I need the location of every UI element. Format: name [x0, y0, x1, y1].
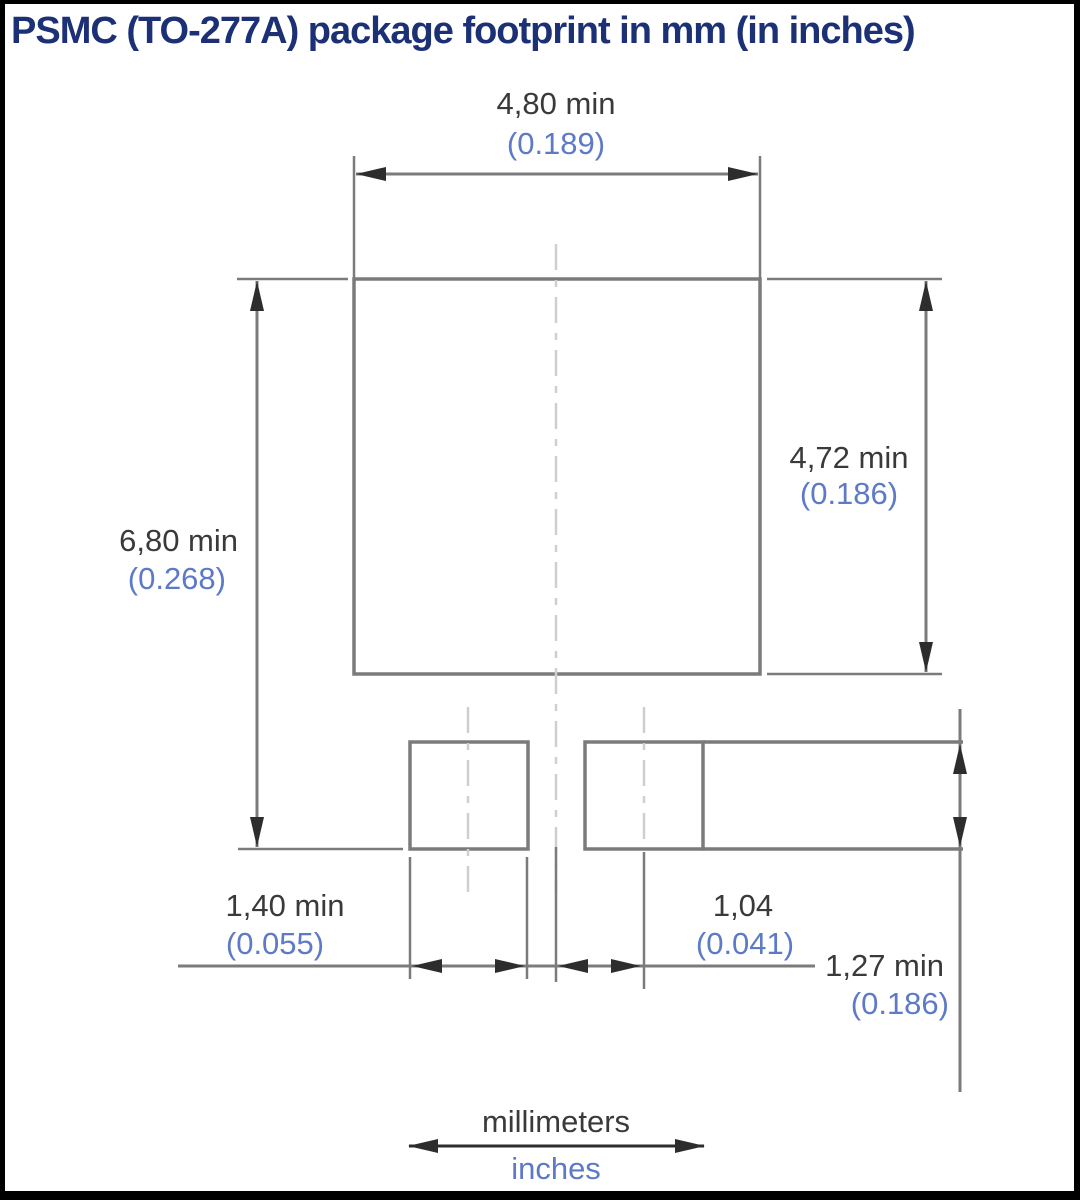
dim-pad-height: [953, 709, 967, 1092]
footprint-drawing-frame: PSMC (TO-277A) package footprint in mm (…: [0, 0, 1080, 1200]
dim-pad-height-inch-label: (0.186): [851, 988, 949, 1019]
main-pad: [354, 244, 760, 892]
arrow-right-icon: [728, 167, 758, 181]
arrow-right-icon: [675, 1139, 705, 1153]
dim-left-height-inch-label: (0.268): [128, 563, 226, 594]
dim-pad-offset-inch-label: (0.041): [696, 928, 794, 959]
arrow-down-icon: [919, 642, 933, 672]
arrow-down-icon: [953, 817, 967, 847]
arrow-up-icon: [250, 281, 264, 311]
arrow-left-icon: [412, 959, 442, 973]
arrow-right-icon: [495, 959, 525, 973]
dim-pad-height-mm-label: 1,27 min: [825, 950, 944, 981]
arrow-left-icon: [356, 167, 386, 181]
dim-right-height-inch-label: (0.186): [800, 478, 898, 509]
arrow-down-icon: [250, 817, 264, 847]
arrow-right-icon: [611, 959, 641, 973]
dim-pad-offset-mm-label: 1,04: [713, 890, 773, 921]
dim-top-width-inch-label: (0.189): [507, 128, 605, 159]
arrow-left-icon: [558, 959, 588, 973]
dim-left-height: [237, 279, 403, 849]
left-pin-pad: [410, 707, 528, 892]
dim-left-height-mm-label: 6,80 min: [119, 525, 238, 556]
dim-top-width-mm-label: 4,80 min: [497, 88, 616, 119]
legend-inches-label: inches: [511, 1153, 601, 1184]
legend-millimeters-label: millimeters: [482, 1106, 630, 1137]
dim-pad-width-mm-label: 1,40 min: [226, 890, 345, 921]
arrow-up-icon: [953, 744, 967, 774]
arrow-up-icon: [919, 281, 933, 311]
arrow-left-icon: [408, 1139, 438, 1153]
dim-right-height-mm-label: 4,72 min: [790, 442, 909, 473]
dim-pad-width-inch-label: (0.055): [226, 928, 324, 959]
